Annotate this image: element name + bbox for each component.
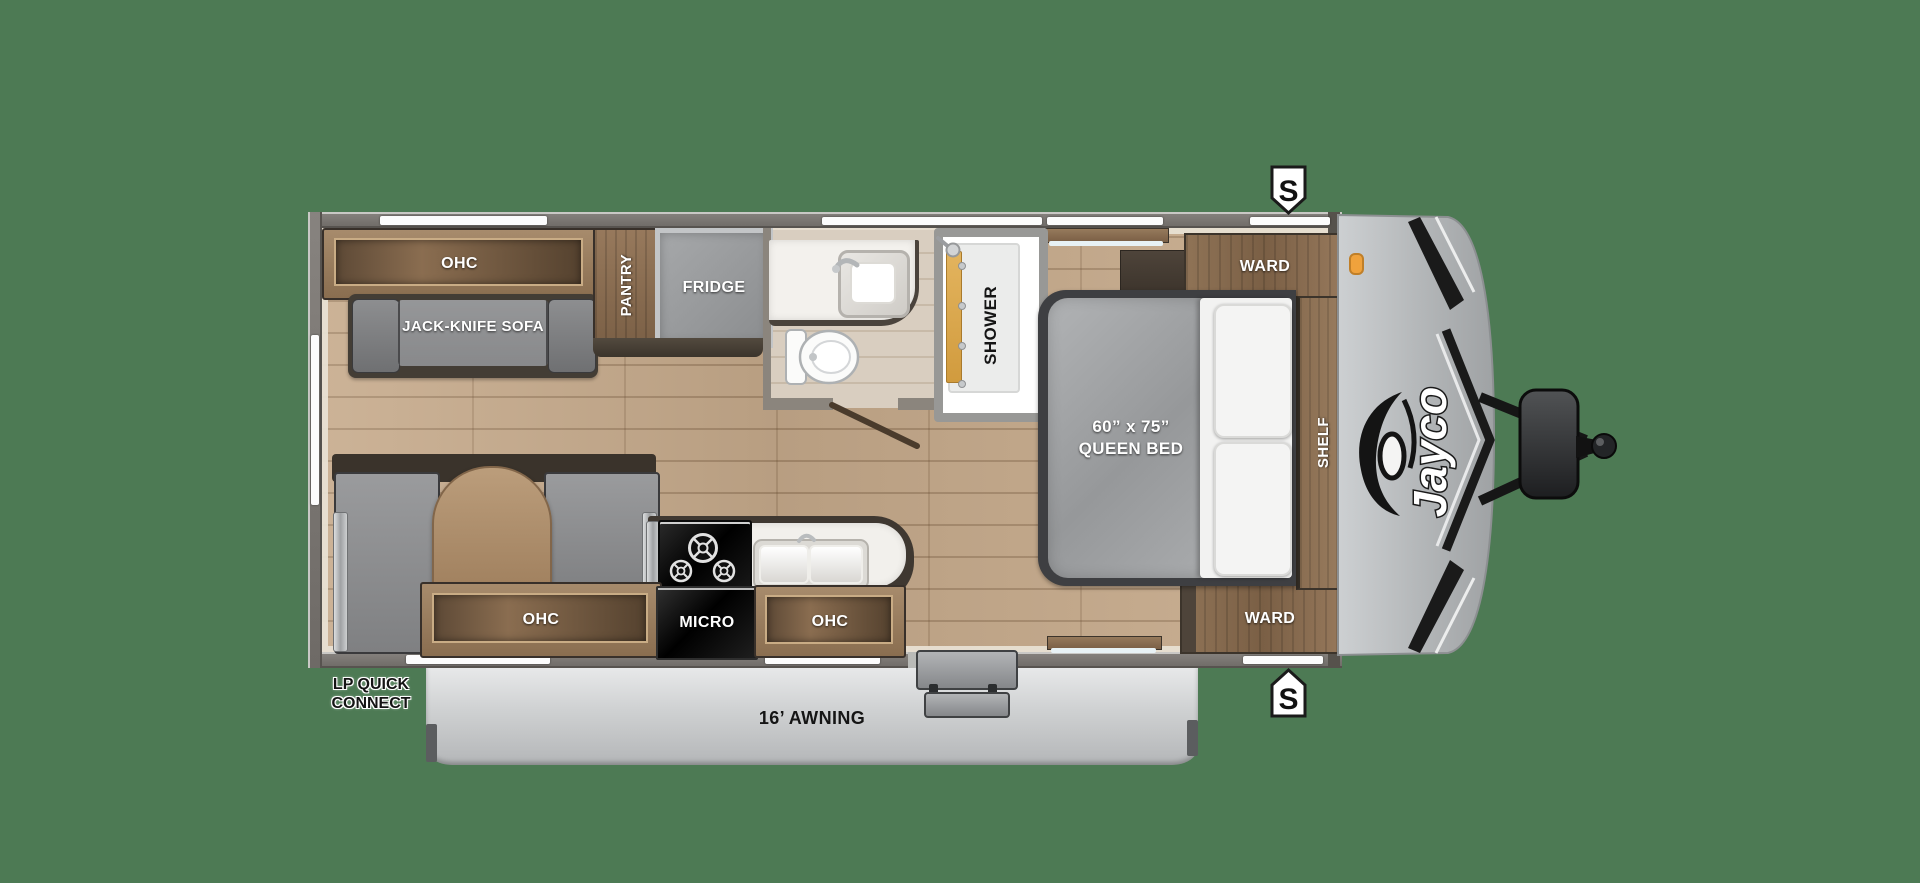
awning-end-cap-right xyxy=(1187,720,1198,756)
shower-label: SHOWER xyxy=(961,237,1021,413)
window-top-sofa xyxy=(380,216,547,225)
fridge-text: FRIDGE xyxy=(683,279,746,297)
front-cap xyxy=(1338,215,1494,655)
entry-step-lower xyxy=(924,692,1010,718)
fridge-label: FRIDGE xyxy=(660,233,768,343)
speaker-top-text: S xyxy=(1278,175,1298,208)
hitch-frame-lower xyxy=(1480,452,1586,501)
bathroom-sink-basin xyxy=(850,262,896,304)
hitch-tongue xyxy=(1576,436,1602,458)
kitchen-sink-basin-right xyxy=(809,545,863,584)
bathroom-wall-bottom-left xyxy=(763,398,833,410)
rear-ohc-text: OHC xyxy=(441,255,478,273)
floorplan-scene: 16’ AWNING LP QUICK CONNECT OHC JACK-KNI… xyxy=(0,0,1920,883)
micro-text: MICRO xyxy=(679,614,734,632)
bed-pillow-bottom xyxy=(1214,442,1292,576)
speaker-bottom-text: S xyxy=(1278,683,1298,716)
propane-tank-cover xyxy=(1520,390,1578,498)
bed-window-glass-bottom xyxy=(1051,648,1156,653)
bed-pillow-top xyxy=(1214,304,1292,438)
shower-text: SHOWER xyxy=(981,286,1001,365)
kitchen-sink-basin-left xyxy=(759,545,809,584)
ward-top-text: WARD xyxy=(1240,258,1290,276)
window-top-bath xyxy=(822,217,1042,225)
dinette-post-left xyxy=(333,512,348,652)
speaker-badge-bottom: S xyxy=(1272,670,1305,716)
kitchen-ohc-right-text: OHC xyxy=(812,613,849,631)
jayco-eagle-wing xyxy=(1404,400,1414,468)
ward-bottom: WARD xyxy=(1180,584,1346,654)
awning-end-cap-left xyxy=(426,724,437,762)
speaker-badge-top: S xyxy=(1272,167,1305,213)
fridge-counter-edge xyxy=(593,338,763,357)
cap-accent-top-silver xyxy=(1436,217,1474,292)
rear-ohc-cabinet: OHC xyxy=(322,228,597,300)
jayco-eagle-icon xyxy=(1359,392,1402,516)
rear-ohc-label: OHC xyxy=(324,230,595,298)
micro-label: MICRO xyxy=(658,588,756,658)
microwave: MICRO xyxy=(656,586,758,660)
bathroom-sink xyxy=(838,250,910,318)
lp-line1: LP QUICK xyxy=(333,675,409,694)
sofa-text: JACK-KNIFE SOFA xyxy=(402,318,544,335)
cap-accent-bottom-black xyxy=(1408,560,1464,653)
window-bottom-ward xyxy=(1243,656,1323,664)
cap-accent-top-black xyxy=(1408,217,1464,310)
kitchen-ohc-right: OHC xyxy=(754,585,906,658)
kitchen-sink-rim xyxy=(753,539,869,590)
kitchen-ohc-left-label: OHC xyxy=(422,584,660,656)
shower-enclosure: SHOWER xyxy=(934,228,1048,422)
stove-cooktop xyxy=(658,520,752,592)
pantry-cabinet: PANTRY xyxy=(593,228,659,342)
jack-knife-sofa: JACK-KNIFE SOFA xyxy=(348,294,598,378)
window-top-bed xyxy=(1047,217,1163,225)
pantry-text: PANTRY xyxy=(618,254,635,316)
bed-window-glass-top xyxy=(1049,241,1163,246)
window-rear xyxy=(311,335,319,505)
dinette-table xyxy=(432,466,552,590)
shelf-text: SHELF xyxy=(1315,417,1332,468)
lp-line2: CONNECT xyxy=(331,694,410,713)
window-top-ward xyxy=(1250,217,1330,225)
shower-door-glass xyxy=(946,251,962,383)
hitch-ball-highlight xyxy=(1596,438,1604,446)
queen-bed: 60” x 75” QUEEN BED xyxy=(1038,290,1296,586)
jayco-logo: Jayco xyxy=(1404,387,1456,517)
cap-accent-chevron-silver xyxy=(1437,334,1479,546)
jayco-eagle-body xyxy=(1380,434,1404,478)
bathroom-wall-bottom-right xyxy=(898,398,938,410)
kitchen-ohc-left-text: OHC xyxy=(523,611,560,629)
shelf-label: SHELF xyxy=(1300,298,1346,588)
cap-marker-light xyxy=(1350,254,1363,274)
ward-bottom-text: WARD xyxy=(1245,610,1295,628)
bed-size-text: 60” x 75” xyxy=(1092,416,1169,438)
cap-accent-chevron-black xyxy=(1446,330,1490,550)
bed-shelf: SHELF xyxy=(1296,296,1348,590)
kitchen-ohc-right-label: OHC xyxy=(756,587,904,656)
bed-type-text: QUEEN BED xyxy=(1079,438,1184,460)
hitch-ball xyxy=(1592,434,1616,458)
bed-label: 60” x 75” QUEEN BED xyxy=(1056,408,1206,468)
cap-accent-bottom-silver xyxy=(1436,578,1474,653)
awning-label: 16’ AWNING xyxy=(732,706,892,730)
kitchen-ohc-left: OHC xyxy=(420,582,662,658)
ward-bottom-label: WARD xyxy=(1196,586,1344,652)
sofa-label: JACK-KNIFE SOFA xyxy=(348,308,598,344)
hitch-frame-upper xyxy=(1480,397,1586,440)
pantry-label: PANTRY xyxy=(595,230,657,340)
awning-label-text: 16’ AWNING xyxy=(759,708,865,729)
lp-quick-connect-label: LP QUICK CONNECT xyxy=(312,672,430,716)
fridge: FRIDGE xyxy=(655,228,773,348)
